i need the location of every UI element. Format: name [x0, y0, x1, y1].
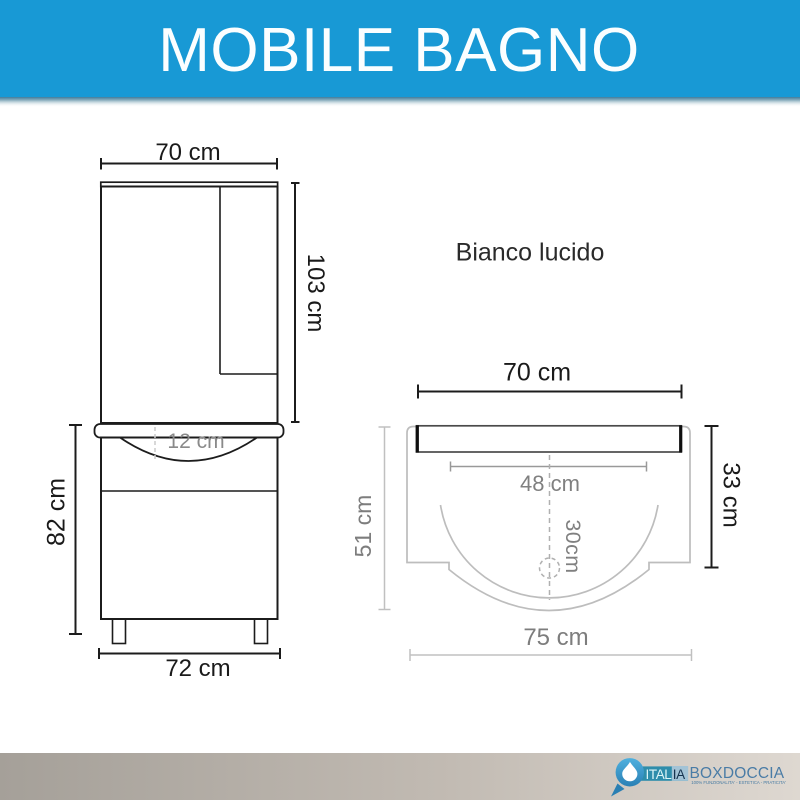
svg-text:12 cm: 12 cm: [167, 430, 224, 453]
svg-text:70 cm: 70 cm: [503, 359, 571, 387]
svg-text:75 cm: 75 cm: [523, 624, 588, 651]
svg-text:51 cm: 51 cm: [350, 495, 376, 558]
svg-text:103 cm: 103 cm: [302, 254, 329, 333]
svg-text:100% FUNZIONALITA' - ESTETICA: 100% FUNZIONALITA' - ESTETICA - PRATICIT…: [691, 780, 786, 785]
svg-text:72 cm: 72 cm: [165, 655, 230, 682]
svg-text:30cm: 30cm: [561, 519, 585, 573]
svg-text:IA: IA: [673, 767, 685, 782]
svg-text:82 cm: 82 cm: [43, 478, 71, 546]
svg-text:Bianco lucido: Bianco lucido: [456, 239, 605, 267]
svg-text:ITAL: ITAL: [646, 767, 673, 782]
svg-text:MOBILE BAGNO: MOBILE BAGNO: [158, 16, 639, 85]
svg-text:70 cm: 70 cm: [155, 139, 220, 166]
svg-text:33 cm: 33 cm: [718, 462, 745, 527]
svg-text:48 cm: 48 cm: [520, 471, 580, 496]
